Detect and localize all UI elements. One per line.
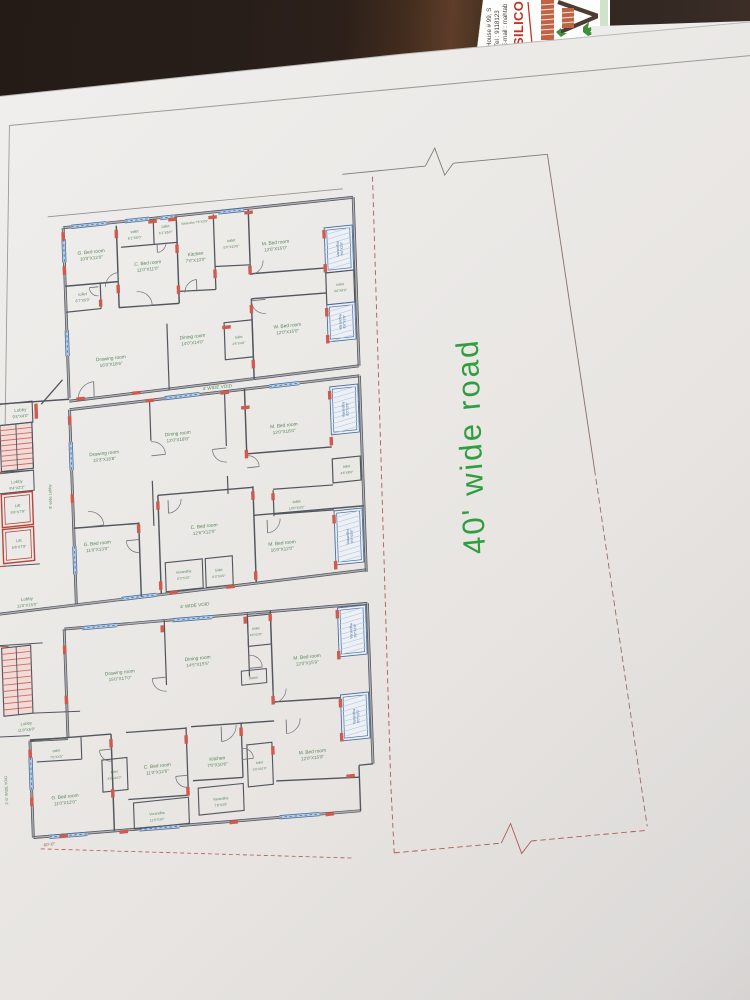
svg-text:E-mail : mahtab: E-mail : mahtab — [502, 3, 509, 47]
svg-text:toilet: toilet — [235, 335, 243, 340]
svg-text:8'0"X3'9": 8'0"X3'9" — [345, 401, 349, 416]
svg-text:House # 99, S: House # 99, S — [486, 8, 493, 47]
svg-text:toilet: toilet — [252, 626, 260, 631]
svg-text:SILICON: SILICON — [511, 0, 526, 46]
svg-text:8'0"X3'9": 8'0"X3'9" — [350, 528, 354, 543]
svg-text:8'0"X3'9": 8'0"X3'9" — [356, 708, 360, 723]
svg-text:toilet: toilet — [78, 291, 87, 297]
svg-text:toilet: toilet — [336, 282, 344, 287]
svg-text:toilet: toilet — [215, 568, 223, 573]
svg-text:8'0"X3'9": 8'0"X3'9" — [353, 623, 357, 638]
svg-text:toilet: toilet — [111, 769, 118, 774]
svg-text:toilet: toilet — [343, 464, 351, 469]
svg-text:8'0"X3'9": 8'0"X3'9" — [342, 314, 346, 329]
svg-text:Tel : 9118123: Tel : 9118123 — [494, 10, 501, 47]
svg-text:toilet: toilet — [256, 760, 263, 765]
svg-text:8' wide Lobby: 8' wide Lobby — [47, 484, 53, 509]
svg-text:toilet: toilet — [53, 748, 61, 753]
svg-text:8'0"X3'9": 8'0"X3'9" — [340, 241, 344, 256]
